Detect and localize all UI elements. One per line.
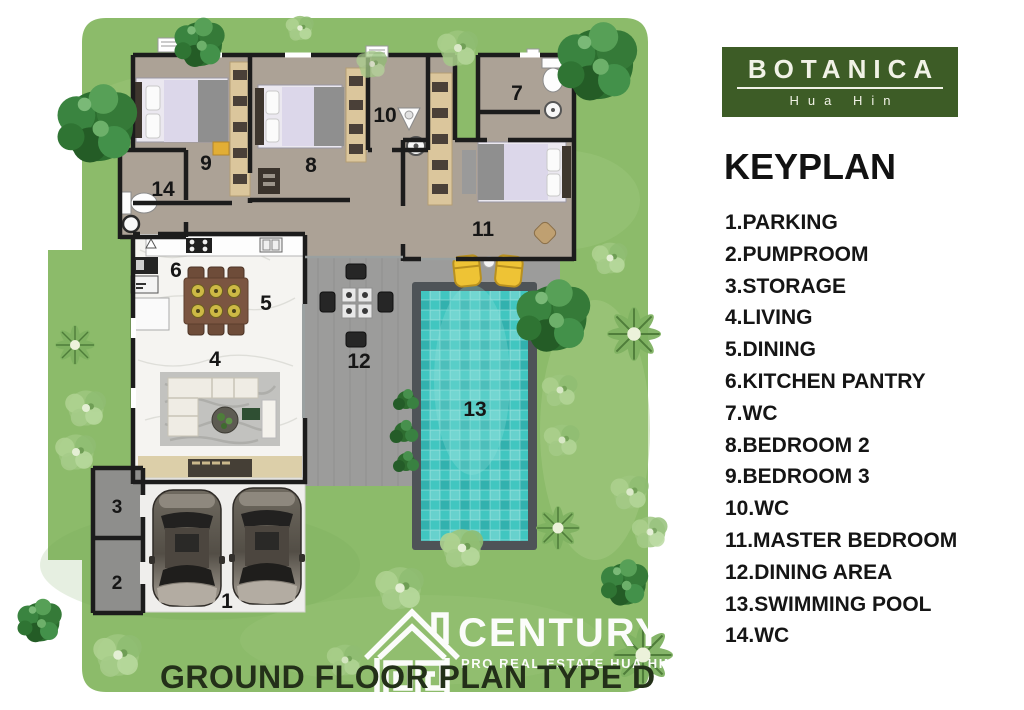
botanica-logo: BOTANICA Hua Hin bbox=[722, 47, 958, 117]
room-label-master: 11 bbox=[472, 218, 495, 241]
coffee-table bbox=[212, 407, 238, 433]
keyplan-list: 1.PARKING 2.PUMPROOM 3.STORAGE 4.LIVING … bbox=[725, 207, 957, 652]
keyplan-panel: BOTANICA Hua Hin KEYPLAN 1.PARKING 2.PUM… bbox=[700, 0, 1024, 710]
room-label-wc10: 10 bbox=[373, 104, 396, 127]
car bbox=[149, 490, 225, 606]
room-label-kitchen: 6 bbox=[170, 259, 182, 282]
room-label-dining: 5 bbox=[260, 292, 272, 315]
room-label-bedroom3: 9 bbox=[200, 152, 212, 175]
keyplan-item: 13.SWIMMING POOL bbox=[725, 589, 957, 621]
keyplan-item: 6.KITCHEN PANTRY bbox=[725, 366, 957, 398]
keyplan-item: 2.PUMPROOM bbox=[725, 239, 957, 271]
keyplan-heading: KEYPLAN bbox=[724, 146, 896, 188]
logo-location: Hua Hin bbox=[781, 93, 900, 108]
room-label-pumproom: 2 bbox=[112, 573, 123, 594]
room-label-bedroom2: 8 bbox=[305, 154, 317, 177]
keyplan-item: 10.WC bbox=[725, 493, 957, 525]
bench bbox=[262, 400, 276, 438]
plan-title: GROUND FLOOR PLAN TYPE D bbox=[160, 659, 656, 695]
room-label-wc7: 7 bbox=[511, 82, 523, 105]
stove bbox=[186, 238, 212, 253]
keyplan-item: 12.DINING AREA bbox=[725, 557, 957, 589]
living-set bbox=[160, 372, 280, 446]
keyplan-item: 8.BEDROOM 2 bbox=[725, 430, 957, 462]
keyplan-item: 1.PARKING bbox=[725, 207, 957, 239]
watermark-brand: CENTURY bbox=[458, 611, 664, 655]
keyplan-item: 11.MASTER BEDROOM bbox=[725, 525, 957, 557]
bed-headboard bbox=[562, 146, 571, 198]
counter bbox=[133, 298, 169, 330]
room-label-living: 4 bbox=[209, 348, 221, 371]
dining-set bbox=[184, 267, 248, 335]
tree-icon bbox=[58, 84, 138, 162]
logo-name: BOTANICA bbox=[737, 56, 943, 89]
books bbox=[242, 408, 260, 420]
page: 1 2 3 4 5 6 7 8 9 10 11 12 13 14 bbox=[0, 0, 1024, 710]
keyplan-item: 5.DINING bbox=[725, 334, 957, 366]
room-label-wc14: 14 bbox=[151, 178, 175, 201]
keyplan-item: 3.STORAGE bbox=[725, 271, 957, 303]
nightstand bbox=[213, 142, 229, 155]
room-label-pool: 13 bbox=[463, 398, 486, 421]
room-label-parking: 1 bbox=[221, 590, 233, 613]
floor-plan-canvas: 1 2 3 4 5 6 7 8 9 10 11 12 13 14 bbox=[0, 0, 700, 710]
room-label-storage: 3 bbox=[112, 497, 123, 518]
car bbox=[229, 488, 305, 604]
keyplan-item: 4.LIVING bbox=[725, 302, 957, 334]
floor-plan: 1 2 3 4 5 6 7 8 9 10 11 12 13 14 bbox=[0, 0, 700, 710]
keyplan-item: 14.WC bbox=[725, 620, 957, 652]
bed-headboard bbox=[255, 88, 264, 145]
keyplan-item: 7.WC bbox=[725, 398, 957, 430]
dresser bbox=[258, 168, 280, 194]
keyplan-item: 9.BEDROOM 3 bbox=[725, 461, 957, 493]
room-label-dining-area: 12 bbox=[347, 350, 370, 373]
